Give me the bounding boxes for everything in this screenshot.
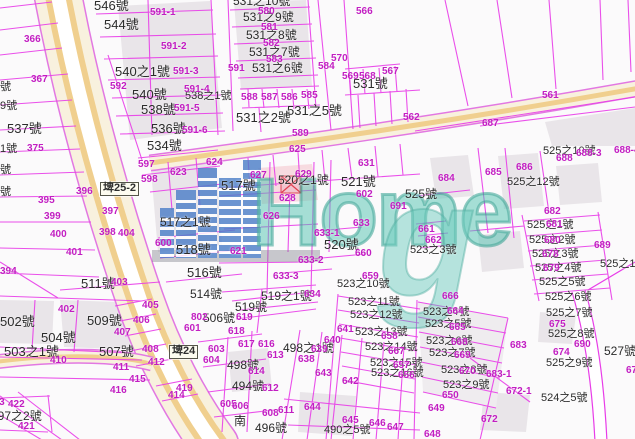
parcel-code-label: 621	[230, 247, 247, 257]
address-label: 525之9號	[546, 358, 592, 369]
parcel-code-label: 582	[263, 39, 280, 49]
parcel-code-label: 591-3	[173, 67, 199, 77]
parcel-code-label: 405	[142, 301, 159, 311]
parcel-code-label: 678	[542, 250, 559, 260]
parcel-code-label: 623	[170, 168, 187, 178]
parcel-code-label: 633-3	[273, 272, 299, 282]
parcel-code-label: 591-1	[150, 8, 176, 18]
parcel-code-label: 690	[574, 340, 591, 350]
parcel-code-label: 648	[424, 430, 441, 439]
parcel-code-label: 567	[382, 67, 399, 77]
address-label: 524之5號	[541, 393, 587, 404]
parcel-code-label: 612	[262, 384, 279, 394]
parcel-code-label: 592	[110, 82, 127, 92]
parcel-code-label: 649	[428, 404, 445, 414]
parcel-code-label: 397	[102, 207, 119, 217]
parcel-code-label: 566	[356, 7, 373, 17]
address-label: 490之5號	[324, 425, 370, 436]
parcel-code-label: 597	[138, 160, 155, 170]
parcel-code-label: 585	[301, 91, 318, 101]
parcel-code-label: 591	[228, 64, 245, 74]
road-index-label: 埤24	[169, 345, 198, 359]
parcel-code-label: 404	[118, 229, 135, 239]
parcel-code-label: 410	[50, 356, 67, 366]
parcel-code-label: 616	[258, 340, 275, 350]
parcel-code-label: 624	[206, 158, 223, 168]
parcel-code-label: 584	[318, 62, 335, 72]
address-label: 531之2號	[236, 111, 291, 124]
parcel-code-label: 646	[369, 419, 386, 429]
parcel-code-label: 603	[208, 345, 225, 355]
parcel-code-label: 568	[359, 72, 376, 82]
parcel-code-label: 664	[447, 307, 464, 317]
parcel-code-label: 411	[113, 363, 129, 373]
parcel-code-label: 683	[510, 341, 527, 351]
address-label: 540號	[132, 88, 167, 101]
address-label: 531之5號	[287, 104, 342, 117]
parcel-code-label: 398	[99, 228, 116, 238]
parcel-code-label: 396	[76, 187, 93, 197]
address-label: 511號	[81, 277, 115, 290]
parcel-code-label: 650	[442, 391, 459, 401]
address-label: 502號	[0, 315, 35, 328]
parcel-code-label: 415	[129, 375, 146, 385]
address-label: 504號	[41, 331, 76, 344]
address-label: 號	[0, 82, 11, 93]
address-label: 521號	[341, 175, 376, 188]
parcel-code-label: 687	[482, 119, 499, 129]
parcel-code-label: 682	[544, 207, 561, 217]
parcel-code-label: 670	[459, 367, 476, 377]
parcel-code-label: 375	[27, 144, 44, 154]
parcel-code-label: 625	[289, 145, 306, 155]
parcel-code-label: 666	[442, 292, 459, 302]
parcel-code-label: 602	[356, 190, 373, 200]
parcel-code-label: 562	[403, 113, 420, 123]
parcel-code-label: 665	[449, 323, 466, 333]
parcel-code-label: 395	[38, 196, 55, 206]
address-label: 517之1號	[160, 216, 211, 228]
parcel-code-label: 633-2	[298, 256, 324, 266]
parcel-code-label: 400	[50, 230, 67, 240]
parcel-code-label: 656	[398, 371, 415, 381]
address-label: 516號	[187, 266, 222, 279]
address-label: 536號	[151, 122, 186, 135]
parcel-code-label: 661	[418, 225, 435, 235]
address-label: 544號	[104, 18, 139, 31]
parcel-code-label: 591-6	[182, 126, 208, 136]
address-label: 南	[234, 415, 246, 427]
parcel-code-label: 394	[0, 267, 17, 277]
address-label: 538號	[141, 103, 176, 116]
parcel-code-label: 628	[279, 194, 296, 204]
address-label: 507號	[99, 345, 134, 358]
parcel-code-label: 642	[342, 377, 359, 387]
parcel-code-label: 633-1	[314, 229, 340, 239]
parcel-code-label: 631	[358, 159, 375, 169]
parcel-code-label: 660	[355, 249, 372, 259]
address-label: 537號	[7, 122, 42, 135]
address-label: 號	[0, 165, 11, 176]
parcel-code-label: 686	[516, 163, 533, 173]
parcel-code-label: 580	[258, 7, 275, 17]
parcel-code-label: 626	[263, 212, 280, 222]
parcel-code-label: 581	[261, 23, 278, 33]
address-label: 534號	[147, 139, 182, 152]
parcel-code-label: 586	[281, 93, 298, 103]
parcel-code-label: 591-5	[174, 104, 200, 114]
address-label: 523之11號	[348, 297, 400, 308]
address-label: 525之5號	[539, 277, 585, 288]
parcel-code-label: 676	[626, 366, 635, 376]
parcel-code-label: 647	[387, 423, 404, 433]
parcel-code-label: 591-2	[161, 42, 187, 52]
address-label: 527號	[604, 345, 635, 357]
parcel-code-label: 403	[111, 278, 128, 288]
parcel-code-label: 561	[542, 91, 559, 101]
parcel-code-label: 667	[388, 347, 405, 357]
parcel-code-label: 413	[0, 398, 5, 408]
parcel-code-label: 601	[184, 324, 201, 334]
parcel-code-label: 614	[248, 367, 265, 377]
parcel-code-label: 408	[142, 345, 159, 355]
address-label: 520號	[324, 238, 359, 251]
parcel-code-label: 619	[236, 313, 253, 323]
parcel-code-label: 638	[298, 355, 315, 365]
parcel-code-label: 669	[454, 351, 471, 361]
parcel-code-label: 644	[304, 403, 321, 413]
parcel-code-label: 587	[261, 93, 278, 103]
parcel-code-label: 406	[133, 316, 150, 326]
parcel-code-label: 416	[110, 386, 127, 396]
parcel-code-label: 606	[232, 402, 249, 412]
parcel-code-label: 367	[31, 75, 48, 85]
address-label: 523之12號	[350, 310, 403, 321]
parcel-code-label: 611	[278, 406, 294, 416]
parcel-code-label: 604	[203, 356, 220, 366]
parcel-code-label: 680	[544, 236, 561, 246]
parcel-code-label: 684	[438, 174, 455, 184]
parcel-code-label: 608	[262, 409, 279, 419]
parcel-code-label: 688-4	[614, 146, 635, 156]
parcel-code-label: 633	[353, 219, 370, 229]
parcel-code-label: 422	[8, 400, 25, 410]
road-index-label: 埤25-2	[100, 182, 139, 196]
address-label: 9號	[0, 101, 17, 112]
parcel-code-label: 658	[381, 332, 398, 342]
parcel-code-label: 583	[266, 55, 283, 65]
parcel-code-label: 683-1	[486, 370, 512, 380]
parcel-code-label: 399	[44, 212, 61, 222]
parcel-code-label: 407	[114, 328, 131, 338]
parcel-code-label: 662	[425, 236, 442, 246]
cadastral-map[interactable]: Home g 546號544號540之1號540號538號538之1號536號5…	[0, 0, 635, 439]
parcel-code-label: 645	[342, 416, 359, 426]
parcel-code-label: 675	[549, 320, 566, 330]
parcel-code-label: 617	[238, 340, 255, 350]
parcel-code-label: 421	[18, 422, 35, 432]
address-label: 523之3號	[410, 245, 456, 256]
parcel-code-label: 668	[451, 338, 468, 348]
parcel-code-label: 366	[24, 35, 41, 45]
parcel-code-label: 689	[594, 241, 611, 251]
parcel-code-label: 681	[546, 220, 563, 230]
address-label: 525之12號	[507, 177, 560, 188]
address-label: 525號	[405, 188, 437, 200]
address-label: 540之1號	[115, 65, 170, 78]
address-label: 525之1號	[600, 259, 635, 270]
address-label: 1號	[0, 144, 17, 155]
parcel-code-label: 402	[58, 305, 75, 315]
parcel-code-label: 401	[66, 248, 83, 258]
parcel-code-label: 598	[141, 175, 158, 185]
parcel-code-label: 627	[250, 171, 267, 181]
parcel-code-label: 569	[342, 72, 359, 82]
address-label: 518號	[176, 243, 211, 256]
parcel-code-label: 641	[337, 325, 354, 335]
parcel-code-label: 659	[362, 272, 379, 282]
parcel-code-label: 688	[556, 154, 573, 164]
address-label: 494號	[232, 380, 264, 392]
parcel-code-label: 685	[485, 168, 502, 178]
parcel-code-label: 618	[228, 327, 245, 337]
parcel-code-label: 672-1	[506, 387, 532, 397]
address-label: 509號	[87, 314, 122, 327]
address-label: 525之7號	[546, 308, 592, 319]
parcel-code-label: 613	[267, 351, 284, 361]
parcel-code-label: 640	[324, 336, 341, 346]
address-label: 525之6號	[545, 292, 591, 303]
address-label: 496號	[255, 422, 287, 434]
parcel-code-label: 802	[191, 313, 208, 323]
parcel-code-label: 639	[311, 345, 328, 355]
parcel-code-label: 588	[241, 93, 258, 103]
parcel-code-label: 643	[315, 369, 332, 379]
address-label: 514號	[190, 288, 222, 300]
parcel-code-label: 419	[176, 384, 193, 394]
parcel-code-label: 657	[393, 361, 410, 371]
parcel-code-label: 634	[304, 290, 321, 300]
parcel-code-label: 591-4	[184, 85, 210, 95]
parcel-code-label: 589	[292, 129, 309, 139]
parcel-code-label: 412	[148, 358, 165, 368]
parcel-code-label: 679	[543, 264, 560, 274]
address-label: 546號	[94, 0, 129, 12]
parcel-code-label: 688-3	[576, 149, 602, 159]
parcel-code-label: 629	[295, 170, 312, 180]
parcel-code-label: 600	[155, 239, 172, 249]
address-label: 號	[0, 187, 11, 198]
parcel-code-label: 674	[553, 348, 570, 358]
parcel-code-label: 672	[481, 415, 498, 425]
parcel-code-label: 691	[390, 202, 407, 212]
